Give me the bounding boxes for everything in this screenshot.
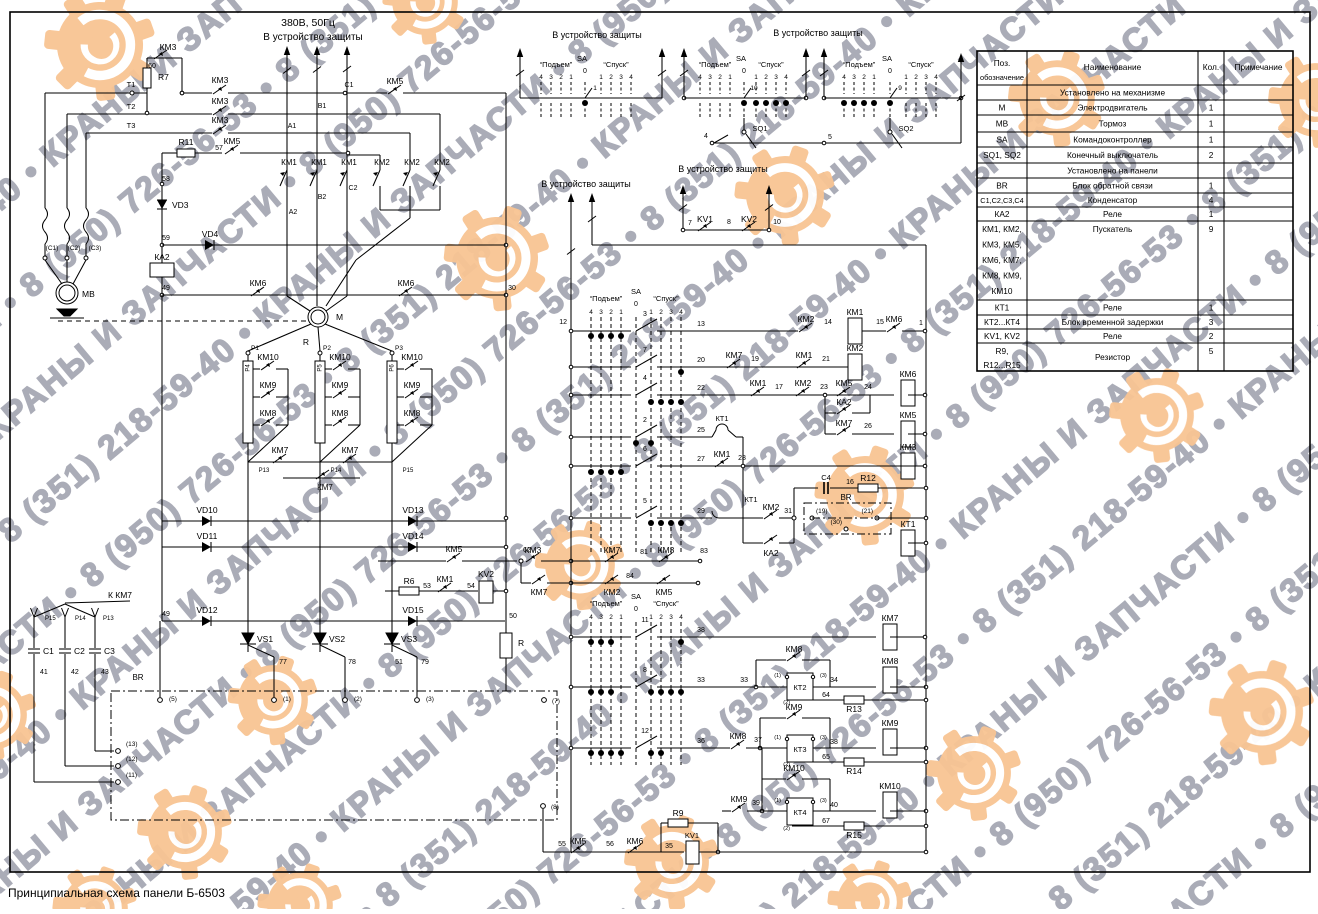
svg-text:3: 3 <box>599 309 603 316</box>
svg-text:SQ2: SQ2 <box>898 124 913 133</box>
svg-text:(3): (3) <box>820 798 827 804</box>
svg-text:Конденсатор: Конденсатор <box>1088 195 1138 205</box>
svg-text:P3: P3 <box>395 345 403 352</box>
svg-text:КМ9: КМ9 <box>786 702 803 712</box>
svg-text:КМ6: КМ6 <box>627 836 644 846</box>
svg-text:3: 3 <box>549 74 553 81</box>
svg-text:В устройство защиты: В устройство защиты <box>263 32 362 43</box>
svg-text:C2: C2 <box>349 185 358 192</box>
svg-text:(30): (30) <box>830 519 842 526</box>
svg-text:9: 9 <box>1209 224 1214 234</box>
svg-text:60: 60 <box>148 63 156 70</box>
svg-text:КТ4: КТ4 <box>793 808 806 817</box>
svg-text:34: 34 <box>830 677 838 684</box>
svg-text:19: 19 <box>751 356 759 363</box>
svg-text:KV1, KV2: KV1, KV2 <box>984 331 1020 341</box>
svg-text:M: M <box>336 312 343 322</box>
svg-text:КМ2: КМ2 <box>434 158 450 167</box>
svg-text:1: 1 <box>904 74 908 81</box>
svg-text:P6: P6 <box>390 364 396 372</box>
svg-text:VD14: VD14 <box>402 531 424 541</box>
svg-text:КМ1: КМ1 <box>281 158 297 167</box>
svg-text:3: 3 <box>1209 317 1214 327</box>
svg-text:(1): (1) <box>774 735 781 741</box>
svg-text:Резистор: Резистор <box>1095 352 1131 362</box>
svg-text:1: 1 <box>619 614 623 621</box>
svg-text:1: 1 <box>872 74 876 81</box>
svg-text:SA: SA <box>736 54 746 63</box>
svg-text:МВ: МВ <box>996 119 1009 129</box>
svg-text:P4: P4 <box>246 364 252 372</box>
svg-text:22: 22 <box>697 385 705 392</box>
svg-text:КМ7: КМ7 <box>342 445 359 455</box>
svg-text:R: R <box>518 638 524 648</box>
svg-text:BR: BR <box>132 673 143 682</box>
svg-text:1: 1 <box>919 320 923 327</box>
svg-text:КМ6: КМ6 <box>900 369 917 379</box>
svg-text:C1: C1 <box>345 82 354 89</box>
svg-text:КТ1: КТ1 <box>901 519 916 529</box>
svg-text:SA: SA <box>577 54 587 63</box>
svg-text:1: 1 <box>619 309 623 316</box>
svg-text:2: 2 <box>609 74 613 81</box>
svg-text:КМ5: КМ5 <box>900 410 917 420</box>
svg-text:Реле: Реле <box>1103 209 1122 219</box>
svg-text:КМ2: КМ2 <box>604 587 621 597</box>
svg-text:2: 2 <box>643 417 647 424</box>
svg-text:VS2: VS2 <box>329 634 345 644</box>
svg-text:4: 4 <box>679 309 683 316</box>
svg-text:(19): (19) <box>816 508 828 515</box>
svg-text:67: 67 <box>822 818 830 825</box>
svg-text:0: 0 <box>634 606 638 613</box>
svg-text:65: 65 <box>822 754 830 761</box>
svg-text:39: 39 <box>752 800 760 807</box>
svg-text:КМ7: КМ7 <box>531 587 548 597</box>
svg-text:6: 6 <box>643 446 647 453</box>
svg-text:КМ5: КМ5 <box>387 76 404 86</box>
svg-text:35: 35 <box>665 843 673 850</box>
svg-text:P14: P14 <box>75 616 86 622</box>
svg-text:40: 40 <box>830 802 838 809</box>
svg-text:(3): (3) <box>426 696 434 703</box>
svg-text:Конечный выключатель: Конечный выключатель <box>1067 150 1158 160</box>
svg-text:М: М <box>999 103 1006 113</box>
svg-text:T3: T3 <box>127 121 136 130</box>
svg-text:КМ2: КМ2 <box>374 158 390 167</box>
svg-text:31: 31 <box>784 508 792 515</box>
svg-text:P15: P15 <box>45 616 56 622</box>
svg-text:КМ3, КМ5,: КМ3, КМ5, <box>982 240 1022 250</box>
svg-text:33: 33 <box>697 677 705 684</box>
svg-text:4: 4 <box>1209 195 1214 205</box>
svg-text:В устройство защиты: В устройство защиты <box>552 30 642 40</box>
svg-text:77: 77 <box>279 659 287 666</box>
svg-text:КТ1: КТ1 <box>995 303 1010 313</box>
svg-text:КМ10: КМ10 <box>329 352 351 362</box>
svg-text:VD12: VD12 <box>196 605 218 615</box>
svg-text:VD11: VD11 <box>197 531 218 541</box>
svg-text:КМ8: КМ8 <box>332 408 349 418</box>
svg-text:Принципиальная схема панели Б-: Принципиальная схема панели Б-6503 <box>8 886 225 900</box>
svg-text:11: 11 <box>641 617 648 624</box>
svg-text:24: 24 <box>864 384 872 391</box>
svg-text:10: 10 <box>750 85 758 92</box>
svg-text:КМ3: КМ3 <box>900 442 917 452</box>
svg-text:Установлено на панели: Установлено на панели <box>1067 166 1158 176</box>
svg-text:КМ9: КМ9 <box>882 718 899 728</box>
svg-text:(1): (1) <box>283 696 291 703</box>
svg-text:(3): (3) <box>820 735 827 741</box>
svg-text:3: 3 <box>708 74 712 81</box>
svg-text:C2: C2 <box>74 646 85 656</box>
svg-text:“Подъем”: “Подъем” <box>699 60 732 69</box>
svg-text:P14: P14 <box>331 468 342 474</box>
svg-text:КМ1: КМ1 <box>714 449 731 459</box>
svg-text:1: 1 <box>1209 103 1214 113</box>
svg-text:56: 56 <box>606 841 614 848</box>
svg-text:SQ1: SQ1 <box>752 124 767 133</box>
svg-text:КМ8, КМ9,: КМ8, КМ9, <box>982 271 1022 281</box>
svg-text:3: 3 <box>774 74 778 81</box>
svg-text:8: 8 <box>643 667 647 674</box>
svg-text:81: 81 <box>640 549 648 556</box>
svg-text:VD3: VD3 <box>172 200 189 210</box>
svg-text:КМ6, КМ7,: КМ6, КМ7, <box>982 255 1022 265</box>
svg-text:(21): (21) <box>861 508 873 515</box>
svg-text:Блок временной задержки: Блок временной задержки <box>1062 317 1164 327</box>
svg-text:КМ1: КМ1 <box>341 158 357 167</box>
svg-text:27: 27 <box>697 456 705 463</box>
svg-text:C1: C1 <box>43 646 54 656</box>
svg-text:КМ3: КМ3 <box>658 545 675 555</box>
svg-text:КМ6: КМ6 <box>886 314 903 324</box>
svg-text:КМ8: КМ8 <box>260 408 277 418</box>
svg-text:1: 1 <box>1209 135 1214 145</box>
svg-text:4: 4 <box>629 74 633 81</box>
svg-text:4: 4 <box>842 74 846 81</box>
svg-text:КМ10: КМ10 <box>401 352 423 362</box>
svg-text:1: 1 <box>1209 303 1214 313</box>
svg-text:4: 4 <box>589 309 593 316</box>
svg-text:2: 2 <box>609 309 613 316</box>
svg-text:КМ1: КМ1 <box>847 307 864 317</box>
svg-text:Примечание: Примечание <box>1234 62 1282 72</box>
svg-text:КМ1: КМ1 <box>796 350 813 360</box>
svg-text:51: 51 <box>395 659 403 666</box>
svg-text:КТ3: КТ3 <box>793 745 806 754</box>
svg-text:55: 55 <box>558 841 566 848</box>
svg-text:В устройство защиты: В устройство защиты <box>773 28 863 38</box>
svg-text:“Подъем”: “Подъем” <box>540 60 573 69</box>
svg-text:КМ3: КМ3 <box>212 75 229 85</box>
svg-text:1: 1 <box>1209 119 1214 129</box>
svg-text:30: 30 <box>508 285 516 292</box>
svg-text:R: R <box>303 337 309 347</box>
svg-text:КМ7: КМ7 <box>726 350 743 360</box>
svg-text:C4: C4 <box>821 473 831 482</box>
svg-text:3: 3 <box>599 614 603 621</box>
svg-text:17: 17 <box>775 384 783 391</box>
svg-text:23: 23 <box>820 384 828 391</box>
svg-text:КМ2: КМ2 <box>763 502 780 512</box>
svg-text:58: 58 <box>162 176 170 183</box>
svg-text:0: 0 <box>742 68 746 75</box>
svg-text:“Спуск”: “Спуск” <box>758 60 784 69</box>
svg-text:4: 4 <box>704 133 708 140</box>
svg-text:KV2: KV2 <box>478 569 494 579</box>
svg-text:4: 4 <box>934 74 938 81</box>
svg-text:(2): (2) <box>354 696 362 703</box>
svg-text:КМ7: КМ7 <box>272 445 289 455</box>
svg-text:КМ1: КМ1 <box>750 378 767 388</box>
svg-text:Наименование: Наименование <box>1084 62 1142 72</box>
svg-text:9: 9 <box>898 85 902 92</box>
svg-text:2: 2 <box>1209 331 1214 341</box>
svg-text:Пускатель: Пускатель <box>1093 224 1133 234</box>
svg-text:КТ1: КТ1 <box>715 414 728 423</box>
svg-text:BR: BR <box>996 181 1008 191</box>
svg-text:KV1: KV1 <box>685 831 699 840</box>
svg-text:3: 3 <box>643 311 647 318</box>
svg-text:10: 10 <box>773 219 781 226</box>
svg-text:КМ1: КМ1 <box>311 158 327 167</box>
svg-text:29: 29 <box>697 508 705 515</box>
svg-text:A2: A2 <box>289 209 298 216</box>
svg-text:КМ8: КМ8 <box>786 644 803 654</box>
svg-text:2: 2 <box>764 74 768 81</box>
svg-text:P13: P13 <box>259 468 270 474</box>
svg-text:3: 3 <box>619 74 623 81</box>
svg-text:КМ3: КМ3 <box>212 115 229 125</box>
svg-text:1: 1 <box>754 74 758 81</box>
svg-text:49: 49 <box>162 285 170 292</box>
svg-text:28: 28 <box>738 455 746 462</box>
svg-text:SA: SA <box>631 287 641 296</box>
svg-text:42: 42 <box>71 669 79 676</box>
svg-text:КМ9: КМ9 <box>332 380 349 390</box>
svg-text:Блок обратной связи: Блок обратной связи <box>1072 181 1153 191</box>
svg-text:A1: A1 <box>288 123 297 130</box>
svg-text:38: 38 <box>830 739 838 746</box>
svg-text:R14: R14 <box>846 766 862 776</box>
svg-text:R6: R6 <box>404 576 415 586</box>
svg-text:1: 1 <box>599 74 603 81</box>
svg-text:380В, 50Гц: 380В, 50Гц <box>281 17 335 29</box>
svg-text:обозначение: обозначение <box>980 73 1024 82</box>
svg-text:P13: P13 <box>103 616 114 622</box>
svg-text:38: 38 <box>697 627 705 634</box>
svg-text:Электродвигатель: Электродвигатель <box>1077 103 1147 113</box>
svg-text:33: 33 <box>740 677 748 684</box>
svg-text:C1,C2,C3,C4: C1,C2,C3,C4 <box>980 196 1023 205</box>
svg-text:КМ5: КМ5 <box>446 544 463 554</box>
svg-text:2: 2 <box>718 74 722 81</box>
svg-text:3: 3 <box>669 614 673 621</box>
svg-text:7: 7 <box>643 347 647 354</box>
svg-text:B2: B2 <box>318 194 327 201</box>
svg-text:КМ10: КМ10 <box>879 781 901 791</box>
svg-text:4: 4 <box>698 74 702 81</box>
svg-text:1: 1 <box>593 85 597 92</box>
svg-text:КМ5: КМ5 <box>836 378 853 388</box>
svg-text:КМ5: КМ5 <box>656 587 673 597</box>
svg-text:4: 4 <box>539 74 543 81</box>
svg-text:КТ1: КТ1 <box>744 495 757 504</box>
svg-text:4: 4 <box>679 614 683 621</box>
svg-text:КМ8: КМ8 <box>882 656 899 666</box>
svg-text:(5): (5) <box>169 696 177 703</box>
svg-text:(7): (7) <box>552 698 560 705</box>
svg-text:(C2): (C2) <box>68 245 81 252</box>
svg-text:КМ3: КМ3 <box>212 96 229 106</box>
svg-text:78: 78 <box>348 659 356 666</box>
svg-text:T1: T1 <box>127 80 136 89</box>
svg-text:57: 57 <box>215 145 223 152</box>
svg-text:КМ1: КМ1 <box>437 574 454 584</box>
svg-text:16: 16 <box>846 479 854 486</box>
svg-text:4: 4 <box>589 614 593 621</box>
svg-text:КМ2: КМ2 <box>798 314 815 324</box>
svg-text:26: 26 <box>864 423 872 430</box>
svg-text:1: 1 <box>728 74 732 81</box>
svg-text:VD10: VD10 <box>196 505 218 515</box>
svg-text:КМ2: КМ2 <box>404 158 420 167</box>
svg-text:Реле: Реле <box>1103 303 1122 313</box>
svg-text:5: 5 <box>1209 346 1214 356</box>
svg-text:КМ10: КМ10 <box>257 352 279 362</box>
svg-text:C3: C3 <box>104 646 115 656</box>
svg-text:25: 25 <box>697 427 705 434</box>
svg-text:(1): (1) <box>774 673 781 679</box>
svg-text:КМ1, КМ2,: КМ1, КМ2, <box>982 224 1022 234</box>
svg-text:1: 1 <box>649 309 653 316</box>
svg-text:5: 5 <box>828 134 832 141</box>
svg-text:R9: R9 <box>673 808 684 818</box>
svg-text:B1: B1 <box>318 103 327 110</box>
svg-text:49: 49 <box>162 611 170 618</box>
svg-text:12: 12 <box>559 319 567 326</box>
svg-text:Реле: Реле <box>1103 331 1122 341</box>
svg-text:5: 5 <box>643 498 647 505</box>
svg-text:2: 2 <box>659 309 663 316</box>
svg-text:79: 79 <box>421 659 429 666</box>
svg-text:53: 53 <box>423 583 431 590</box>
svg-text:“Спуск”: “Спуск” <box>603 60 629 69</box>
svg-text:KV1: KV1 <box>697 214 713 224</box>
svg-text:VD15: VD15 <box>402 605 424 615</box>
svg-text:R9,: R9, <box>996 346 1009 356</box>
svg-text:R12: R12 <box>860 473 876 483</box>
svg-text:КМ9: КМ9 <box>731 794 748 804</box>
svg-text:R13: R13 <box>846 704 862 714</box>
svg-text:VS3: VS3 <box>401 634 417 644</box>
svg-text:КМ10: КМ10 <box>783 763 805 773</box>
svg-text:КМ8: КМ8 <box>730 731 747 741</box>
svg-text:КМ5: КМ5 <box>570 836 587 846</box>
svg-text:1: 1 <box>569 74 573 81</box>
svg-text:2: 2 <box>1209 150 1214 160</box>
svg-text:59: 59 <box>162 235 170 242</box>
svg-text:КА2: КА2 <box>995 209 1010 219</box>
svg-text:Командоконтроллер: Командоконтроллер <box>1073 135 1152 145</box>
svg-text:41: 41 <box>40 669 48 676</box>
svg-text:(11): (11) <box>126 772 137 779</box>
svg-text:1: 1 <box>649 614 653 621</box>
svg-text:P1: P1 <box>251 345 259 352</box>
svg-text:КМ3: КМ3 <box>160 42 177 52</box>
svg-text:R11: R11 <box>179 137 194 147</box>
svg-text:20: 20 <box>697 357 705 364</box>
svg-text:12: 12 <box>641 728 649 735</box>
svg-text:83: 83 <box>700 548 708 555</box>
svg-text:“Подъем”: “Подъем” <box>590 599 623 608</box>
svg-text:3: 3 <box>852 74 856 81</box>
svg-text:КТ2...КТ4: КТ2...КТ4 <box>984 317 1020 327</box>
svg-text:1: 1 <box>1209 209 1214 219</box>
svg-text:13: 13 <box>697 321 705 328</box>
svg-text:КМ3: КМ3 <box>525 545 542 555</box>
svg-text:КМ8: КМ8 <box>404 408 421 418</box>
svg-text:“Спуск”: “Спуск” <box>653 599 679 608</box>
svg-text:МВ: МВ <box>82 289 95 299</box>
svg-text:КМ6: КМ6 <box>250 278 267 288</box>
svg-text:SQ1, SQ2: SQ1, SQ2 <box>983 150 1021 160</box>
svg-text:P2: P2 <box>323 345 331 352</box>
svg-text:21: 21 <box>822 356 830 363</box>
svg-text:54: 54 <box>467 583 475 590</box>
svg-text:4: 4 <box>643 375 647 382</box>
svg-text:(12): (12) <box>126 756 138 763</box>
svg-text:R7: R7 <box>158 72 169 82</box>
svg-text:2: 2 <box>659 614 663 621</box>
svg-text:КМ7: КМ7 <box>604 545 621 555</box>
svg-text:2: 2 <box>914 74 918 81</box>
svg-text:(C1): (C1) <box>46 245 59 252</box>
svg-text:(1): (1) <box>774 798 781 804</box>
svg-text:43: 43 <box>101 669 109 676</box>
svg-text:“Спуск”: “Спуск” <box>908 60 934 69</box>
svg-text:(13): (13) <box>126 741 138 748</box>
svg-text:2: 2 <box>609 614 613 621</box>
svg-text:KV2: KV2 <box>741 214 757 224</box>
svg-text:В устройство защиты: В устройство защиты <box>678 164 768 174</box>
svg-text:“Подъем”: “Подъем” <box>590 294 623 303</box>
svg-text:SA: SA <box>631 592 641 601</box>
svg-text:VS1: VS1 <box>257 634 273 644</box>
svg-text:0: 0 <box>583 68 587 75</box>
svg-text:Кол.: Кол. <box>1203 62 1219 72</box>
svg-text:84: 84 <box>626 573 634 580</box>
svg-text:КА2: КА2 <box>763 548 779 558</box>
svg-text:“Подъем”: “Подъем” <box>843 60 876 69</box>
svg-text:КМ7: КМ7 <box>836 418 853 428</box>
svg-text:BR: BR <box>840 493 851 502</box>
svg-text:КА2: КА2 <box>154 252 170 262</box>
svg-text:SA: SA <box>996 135 1008 145</box>
svg-text:(8): (8) <box>551 804 559 811</box>
svg-text:КМ10: КМ10 <box>992 286 1013 296</box>
svg-text:КМ7: КМ7 <box>882 613 899 623</box>
svg-text:VD13: VD13 <box>402 505 424 515</box>
svg-text:SA: SA <box>882 54 892 63</box>
svg-text:64: 64 <box>822 692 830 699</box>
svg-text:R15: R15 <box>846 830 862 840</box>
svg-text:КМ6: КМ6 <box>398 278 415 288</box>
svg-text:14: 14 <box>824 319 832 326</box>
svg-text:7: 7 <box>688 220 692 227</box>
svg-text:0: 0 <box>888 68 892 75</box>
